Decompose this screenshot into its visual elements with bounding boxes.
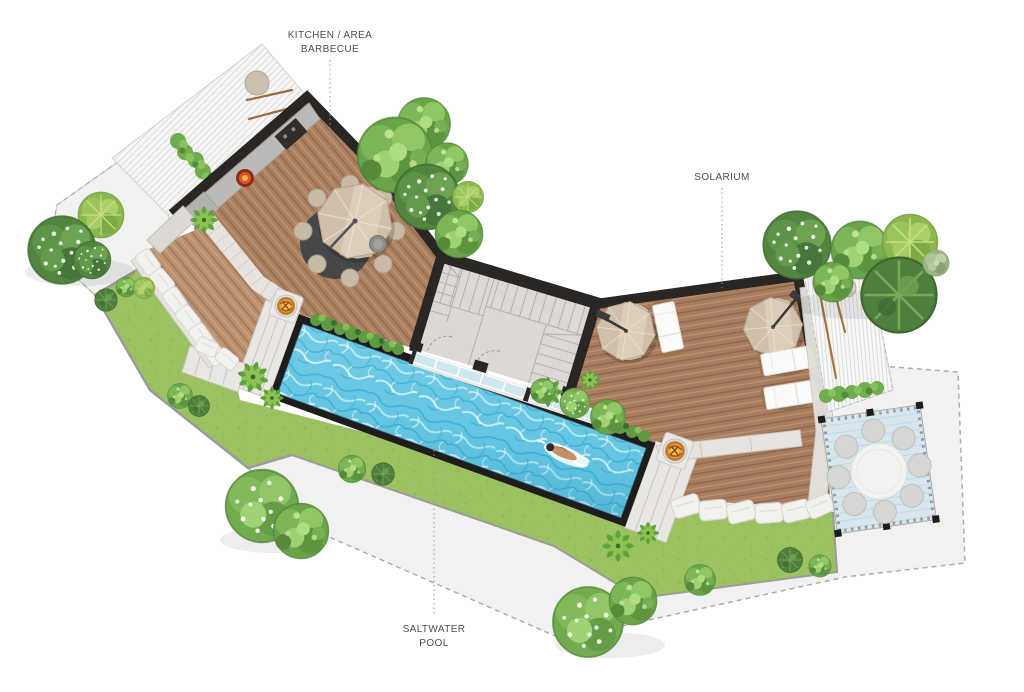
- svg-text:KITCHEN / AREA: KITCHEN / AREA: [288, 30, 373, 41]
- svg-text:SOLARIUM: SOLARIUM: [694, 172, 749, 183]
- svg-text:SALTWATER: SALTWATER: [403, 624, 466, 635]
- svg-text:BARBECUE: BARBECUE: [301, 44, 359, 55]
- svg-text:POOL: POOL: [419, 638, 448, 649]
